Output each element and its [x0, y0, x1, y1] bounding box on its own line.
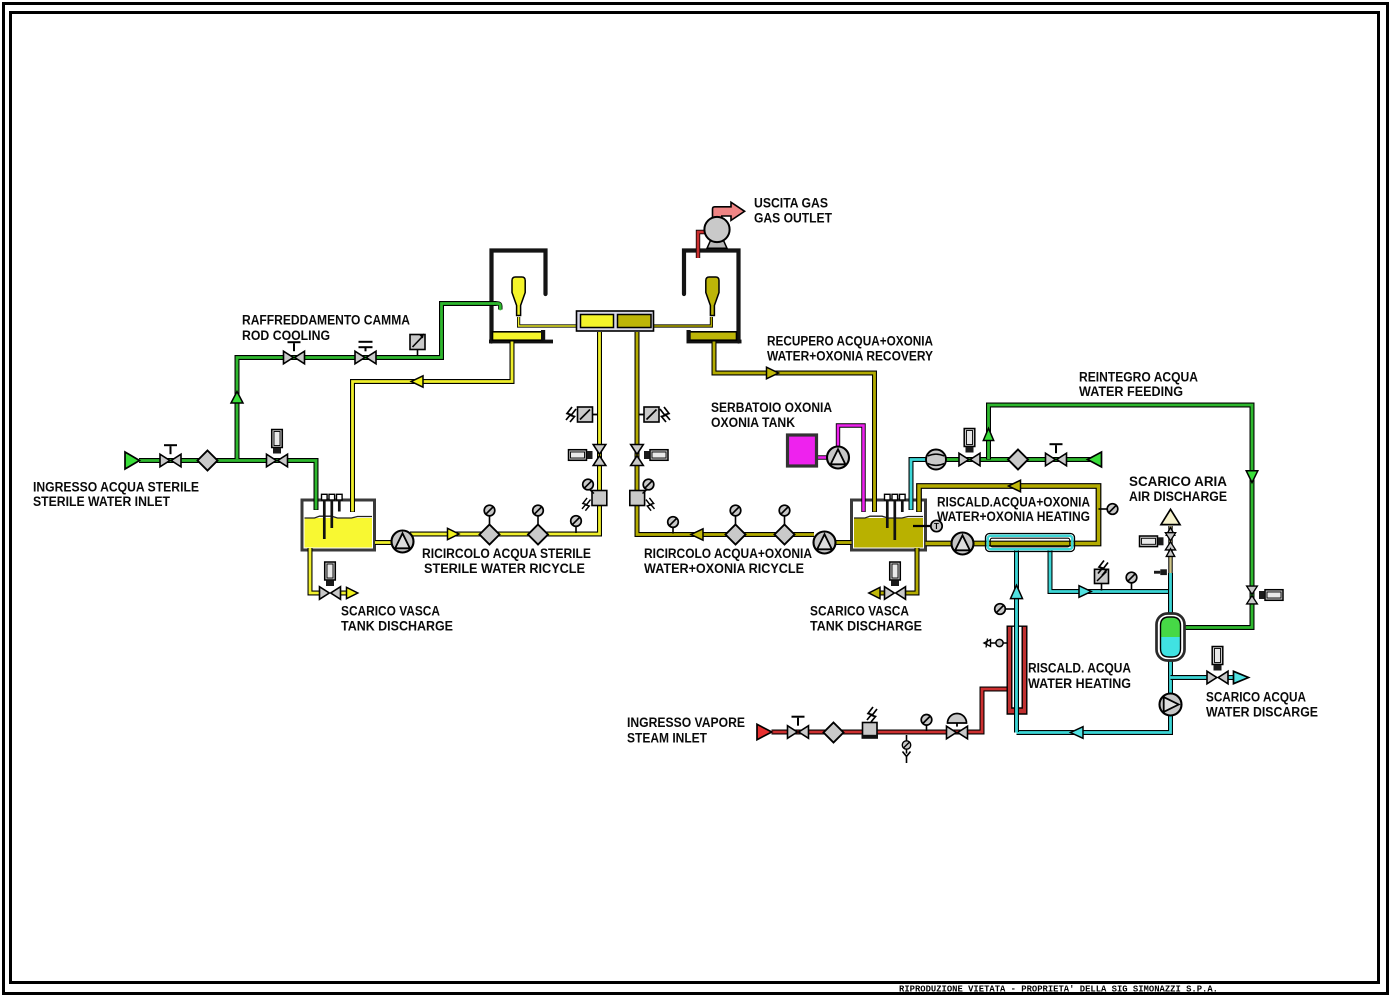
svg-text:WATER HEATING: WATER HEATING: [1028, 676, 1131, 691]
svg-text:RISCALD. ACQUA: RISCALD. ACQUA: [1028, 661, 1131, 676]
svg-text:RIPRODUZIONE VIETATA - PROPRIE: RIPRODUZIONE VIETATA - PROPRIETA' DELLA …: [899, 983, 1218, 994]
svg-text:TANK DISCHARGE: TANK DISCHARGE: [341, 618, 453, 633]
svg-text:STERILE WATER INLET: STERILE WATER INLET: [33, 494, 171, 509]
svg-text:REINTEGRO ACQUA: REINTEGRO ACQUA: [1079, 369, 1198, 384]
svg-text:RAFFREDDAMENTO CAMMA: RAFFREDDAMENTO CAMMA: [242, 313, 410, 328]
svg-text:RECUPERO ACQUA+OXONIA: RECUPERO ACQUA+OXONIA: [767, 334, 933, 349]
svg-text:INGRESSO ACQUA STERILE: INGRESSO ACQUA STERILE: [33, 479, 199, 494]
svg-text:INGRESSO VAPORE: INGRESSO VAPORE: [627, 715, 745, 730]
svg-text:RISCALD.ACQUA+OXONIA: RISCALD.ACQUA+OXONIA: [937, 494, 1090, 509]
svg-text:ROD COOLING: ROD COOLING: [242, 328, 330, 343]
svg-text:WATER+OXONIA RECOVERY: WATER+OXONIA RECOVERY: [767, 349, 933, 364]
svg-text:TANK DISCHARGE: TANK DISCHARGE: [810, 618, 922, 633]
svg-text:OXONIA TANK: OXONIA TANK: [711, 415, 795, 430]
svg-text:SCARICO VASCA: SCARICO VASCA: [810, 603, 909, 618]
svg-text:WATER+OXONIA RICYCLE: WATER+OXONIA RICYCLE: [644, 561, 804, 576]
svg-text:WATER DISCARGE: WATER DISCARGE: [1206, 704, 1318, 719]
svg-text:GAS OUTLET: GAS OUTLET: [754, 210, 833, 225]
svg-text:SERBATOIO OXONIA: SERBATOIO OXONIA: [711, 400, 832, 415]
svg-text:STEAM INLET: STEAM INLET: [627, 730, 708, 745]
svg-text:SCARICO VASCA: SCARICO VASCA: [341, 603, 440, 618]
svg-text:SCARICO ARIA: SCARICO ARIA: [1129, 474, 1227, 489]
svg-text:STERILE WATER RICYCLE: STERILE WATER RICYCLE: [424, 561, 585, 576]
svg-text:WATER+OXONIA HEATING: WATER+OXONIA HEATING: [937, 509, 1090, 524]
svg-text:RICIRCOLO ACQUA+OXONIA: RICIRCOLO ACQUA+OXONIA: [644, 546, 812, 561]
svg-text:AIR DISCHARGE: AIR DISCHARGE: [1129, 489, 1227, 504]
svg-text:RICIRCOLO ACQUA STERILE: RICIRCOLO ACQUA STERILE: [422, 546, 591, 561]
svg-text:USCITA GAS: USCITA GAS: [754, 196, 828, 211]
svg-text:WATER FEEDING: WATER FEEDING: [1079, 384, 1183, 399]
svg-text:SCARICO ACQUA: SCARICO ACQUA: [1206, 689, 1306, 704]
